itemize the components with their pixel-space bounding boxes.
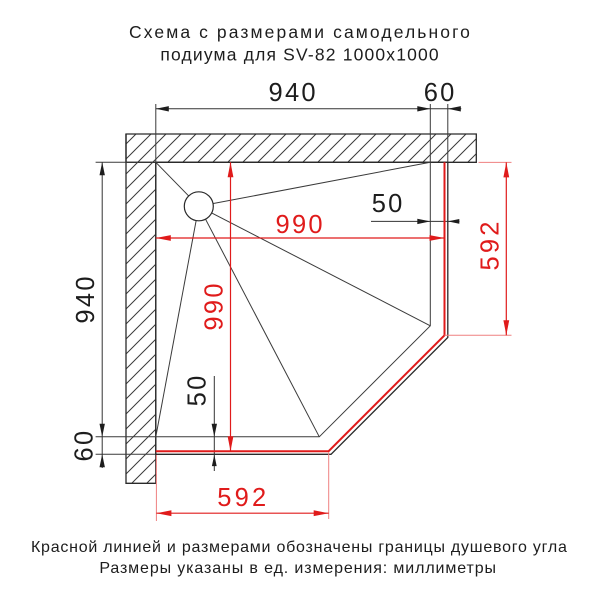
- svg-text:592: 592: [477, 218, 505, 270]
- svg-text:990: 990: [275, 211, 324, 239]
- svg-text:990: 990: [201, 281, 229, 330]
- svg-text:940: 940: [268, 79, 317, 107]
- svg-text:подиума для SV-82 1000x1000: подиума для SV-82 1000x1000: [160, 45, 440, 65]
- svg-text:Красной линией и размерами обо: Красной линией и размерами обозначены гр…: [31, 539, 568, 556]
- svg-text:50: 50: [372, 190, 405, 218]
- svg-text:592: 592: [217, 484, 269, 512]
- svg-text:50: 50: [184, 373, 212, 406]
- svg-text:60: 60: [71, 429, 99, 462]
- svg-text:Размеры указаны в ед. измерени: Размеры указаны в ед. измерения: миллиме…: [99, 560, 497, 577]
- svg-text:940: 940: [72, 274, 100, 323]
- svg-text:Схема с размерами самодельного: Схема с размерами самодельного: [129, 22, 472, 42]
- svg-text:60: 60: [424, 79, 457, 107]
